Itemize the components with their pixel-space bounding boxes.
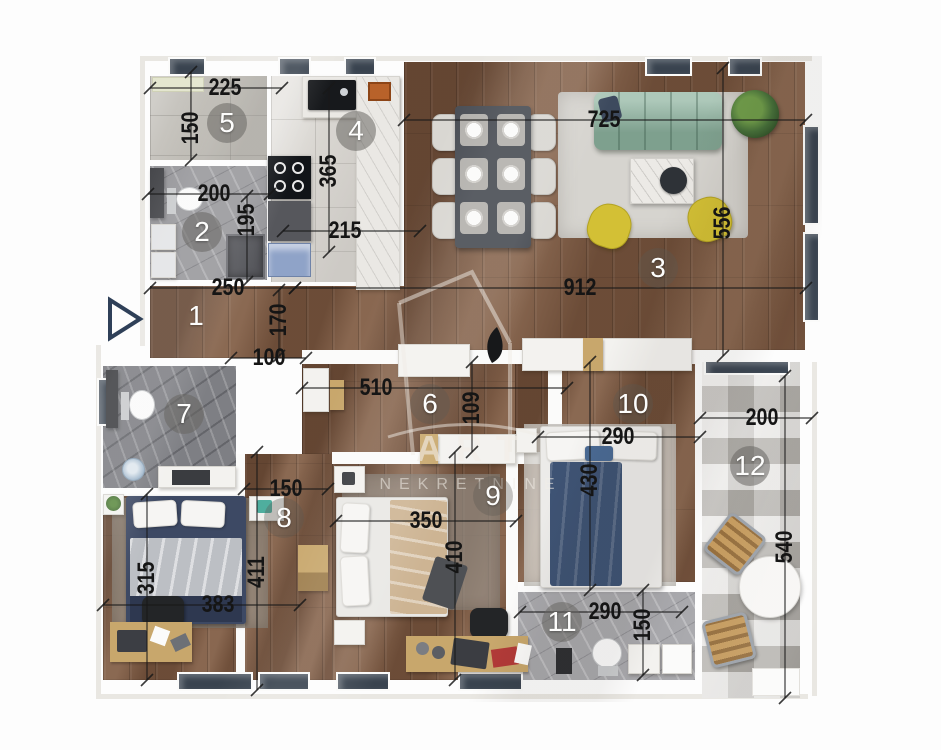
stove-burner-2 [292,162,304,174]
bath2-toilet [176,187,203,211]
stove-burner-4 [292,180,304,192]
bath11-bin [556,648,572,674]
room9-desk-chair [470,608,508,638]
bedroom-left-blanket [130,538,242,600]
place-setting-1 [460,114,488,146]
coffee-table-tray [660,167,687,194]
window-top-3 [344,57,376,76]
balcony-platform [752,668,800,696]
room10-blanket-navy [550,462,622,586]
dining-chair-4 [527,114,556,151]
dishwasher [268,243,311,277]
bath2-shower [226,234,265,279]
kitchen-counter-right [356,76,400,290]
bath7-cabinet-dark [106,370,118,428]
bedroom-left-laptop [117,630,147,652]
window-balcony-door [704,360,790,375]
dining-chair-6 [527,202,556,239]
window-top-5 [728,57,762,76]
bath7-vanity-dark-slab [172,470,210,485]
window-right-1 [803,125,820,225]
place-setting-2 [497,114,525,146]
room9-desk-bowl-2 [432,646,445,659]
outer-wall-edge-top [143,56,812,61]
wardrobe-room10-accent [583,338,603,371]
place-setting-5 [460,202,488,234]
room6-closet-left [398,344,470,377]
room9-pillow-2 [340,555,371,606]
bath2-toilet-tank [167,188,176,214]
window-bottom-4 [458,672,523,691]
window-top-1 [168,57,206,76]
dining-chair-5 [527,158,556,195]
room8-shelf [298,545,328,591]
kitchen-faucet [340,88,348,96]
wardrobe-room10 [522,338,692,371]
room9-wardrobe-accent [420,434,438,464]
bath11-toilet-tank [598,666,618,676]
balcony-table [739,556,801,618]
bath7-shower-head [122,458,145,481]
room9-desk-laptop [450,638,489,670]
kitchen-sink [308,80,356,110]
room9-desk-bowl-1 [416,642,429,655]
place-setting-4 [497,158,525,190]
bath2-vanity-dark [150,168,164,218]
bath2-washer-2 [151,252,176,278]
floor-plan-page: ART NEKRETNINE 1234567891011122251502001… [0,0,941,750]
stove-burner-3 [274,180,286,192]
outer-wall-edge-right [812,362,817,696]
window-bottom-3 [336,672,390,691]
plant-living [731,90,779,138]
window-bottom-1 [177,672,253,691]
window-top-4 [645,57,692,76]
window-right-2 [803,232,820,322]
room10-nightstand-1 [516,428,537,453]
room6-cabinet-small [303,368,329,412]
place-setting-3 [460,158,488,190]
room9-nightstand-decor [342,472,355,485]
room9-pillow-1 [340,502,371,553]
bedroom-left-decor-teal [257,500,272,513]
bath7-toilet-tank [121,392,129,420]
entrance-arrow-icon [104,296,148,342]
kitchen-cabinet-dark [268,201,311,241]
bedroom-left-pillow-1 [132,499,178,528]
room9-nightstand-2 [334,620,365,645]
bath2-washer-1 [151,224,176,250]
bedroom-left-pillow-2 [180,500,225,528]
bath11-toilet [592,638,622,668]
doormat [152,77,204,92]
room-1-hall-floor [150,286,404,358]
bath11-sink [662,644,692,674]
room6-cabinet-accent [330,380,344,410]
cutting-board [368,82,391,101]
window-bottom-2 [258,672,310,691]
bath7-toilet [129,390,155,420]
bedroom-left-plant [106,496,121,511]
place-setting-6 [497,202,525,234]
room10-pillow-blue [585,446,613,461]
window-top-2 [278,57,311,76]
stove [268,156,311,199]
stove-burner-1 [274,162,286,174]
bath11-washer [628,644,660,674]
